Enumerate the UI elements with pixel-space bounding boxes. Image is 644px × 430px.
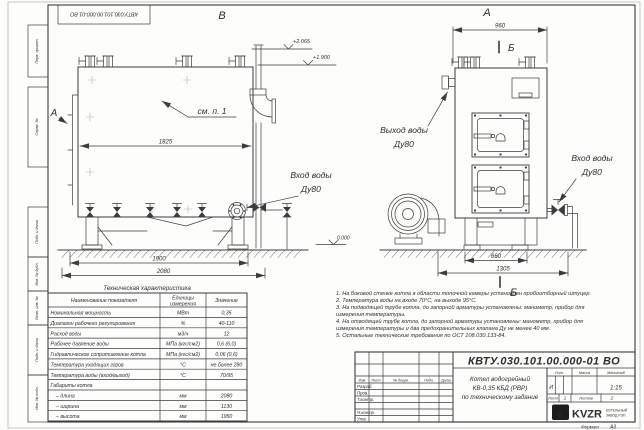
spec-cell: – высота	[55, 414, 80, 420]
top-valve-icon	[229, 56, 246, 67]
top-valve-icon	[176, 56, 193, 67]
dim-2080: 2080	[156, 269, 171, 275]
margin-label: Подп. и дата	[35, 338, 39, 362]
spec-cell: Диапазон рабочего регулирования	[50, 321, 136, 327]
see-ref-leader	[162, 101, 188, 117]
door-lock-icon	[496, 134, 505, 141]
shell-bottom	[147, 217, 213, 226]
note-item: 3. На подводящей трубе котла, до запорно…	[336, 305, 600, 319]
down-pipe	[256, 123, 261, 248]
view-front	[380, 27, 586, 287]
dim-1825: 1825	[159, 140, 173, 146]
spec-cell: МПа (кгс/см2)	[166, 352, 200, 358]
inlet-label: Вход воды	[290, 170, 332, 180]
door-upper	[472, 113, 529, 157]
tb-product-title: КВ-0,35 КБД (РВР)	[473, 385, 528, 392]
dim-1900: 1900	[152, 257, 166, 263]
spec-col-header: измерения	[170, 302, 196, 308]
spec-cell: 0,35	[221, 311, 231, 317]
spec-col-header: Наименование показателя	[71, 298, 137, 304]
outlet-label: Выход воды	[380, 125, 429, 135]
dim-1305: 1305	[496, 267, 510, 273]
pedestal	[465, 218, 537, 245]
spec-cell: 1130	[221, 404, 232, 410]
spec-cell: 0,6 (6,0)	[217, 342, 237, 348]
tb-col-header: Лист	[370, 379, 380, 383]
note-item: 1. На боковой стенке котла в области топ…	[336, 291, 600, 298]
spec-cell: МВт	[177, 311, 190, 317]
drain-valve-icon	[113, 204, 122, 218]
spec-col-header: Значение	[215, 298, 238, 304]
spec-cell: °С	[180, 362, 186, 368]
tb-sheet-label: Лист	[547, 397, 558, 401]
section-b-label-top: Б	[508, 43, 515, 54]
elevation-value: 0.000	[337, 236, 350, 242]
tb-sheets-label: Листов	[578, 397, 593, 401]
tb-lit-value: И	[549, 385, 553, 391]
tb-col-header: Изм	[359, 379, 366, 383]
top-valve-icon	[464, 57, 481, 68]
spec-cell: – длина	[55, 394, 75, 400]
spec-cell: Расход воды	[51, 331, 82, 337]
inlet-size-label: Ду80	[581, 167, 602, 177]
spec-cell: не более 280	[211, 362, 243, 368]
see-ref-label: см. п. 1	[198, 106, 227, 116]
dim-960: 960	[495, 24, 506, 30]
spec-cell: %	[181, 321, 186, 327]
tb-mass-header: Масса	[579, 371, 590, 375]
title-block-doc-number: КВТУ.030.101.00.000-01 ВО	[468, 356, 620, 368]
tb-staff-role: Пров.	[357, 391, 368, 396]
spec-cell: Температура воды (вход/выход)	[51, 373, 130, 379]
spec-cell: Температура уходящих газов	[51, 362, 124, 368]
company-name-line: ЗАВОД РЭП	[606, 414, 626, 418]
tb-product-title: по техническому задание	[462, 393, 539, 401]
technical-notes: 1. На боковой стенке котла в области топ…	[336, 291, 600, 340]
margin-label: Перв. примен.	[35, 38, 39, 63]
company-name-line: КОТЕЛЬНЫЙ	[606, 409, 628, 413]
pipe-valve-icon	[247, 203, 266, 212]
tb-scale-value: 1:15	[610, 386, 622, 392]
blower-fan-icon	[388, 194, 445, 244]
centerline-crosses	[86, 76, 192, 213]
inlet-leader	[559, 179, 576, 202]
view-front-label: А	[482, 7, 490, 19]
outlet-leader	[428, 92, 448, 126]
view-side-label: В	[218, 10, 225, 22]
spec-cell: °С	[180, 373, 186, 379]
spec-cell: МПа (кгс/см2)	[166, 342, 200, 348]
note-item: 2. Температура воды на входе 70°С, на вы…	[336, 298, 600, 305]
spec-cell: мм	[179, 404, 187, 410]
margin-label: Взам. инв. №	[35, 296, 39, 319]
kvzr-logo-text: KVZR	[572, 409, 602, 421]
format-value: А3	[609, 425, 616, 430]
spec-cell: 12	[224, 331, 230, 337]
aux-valve-icon	[283, 204, 292, 218]
spec-cell: 70/95	[220, 373, 233, 379]
spec-table-title: Техническая характеристика	[103, 285, 191, 292]
tb-col-header: Подп.	[424, 379, 434, 383]
door-lock-icon	[496, 187, 505, 194]
ground-hatch	[384, 251, 583, 258]
tb-scale-header: Масштаб	[607, 371, 626, 375]
drawing-canvas: Перв. примен. Справ. № Подп. и дата Инв.…	[0, 0, 644, 430]
side-conduit	[68, 95, 78, 205]
format-label: Формат	[581, 425, 599, 430]
note-item: 4. На отводящей трубе котла, до запорной…	[336, 319, 600, 333]
tb-staff-role: Разраб.	[357, 384, 373, 389]
outlet-flange-icon	[442, 76, 449, 89]
spec-cell: 40-110	[219, 321, 235, 327]
ground-hatch	[62, 251, 301, 258]
spec-cell: м3/ч	[178, 331, 189, 337]
stack-flange	[250, 89, 266, 95]
support-leg	[86, 217, 98, 245]
door-lower	[472, 165, 529, 213]
drain-valve-icon	[146, 204, 155, 218]
inlet-size-label: Ду80	[300, 184, 321, 194]
spec-cell: Габариты котла	[51, 383, 93, 389]
inlet-valve-icon	[547, 200, 578, 249]
tb-col-header: № докум.	[393, 379, 409, 383]
tb-staff-role: Утв.	[357, 417, 367, 422]
door-latch	[474, 187, 491, 191]
spec-cell: 0,06 (0,6)	[215, 352, 237, 358]
stack-pipe	[254, 45, 263, 89]
boiler-body-front	[455, 68, 547, 218]
margin-label: Подп. и дата	[35, 220, 39, 244]
margin-label: Справ. №	[35, 118, 39, 135]
section-a-arrow	[59, 118, 67, 124]
door-latch	[474, 134, 491, 138]
top-valve-icon	[452, 57, 469, 68]
tb-lit-header: Лит.	[554, 371, 564, 375]
elevation-value: +2.065	[293, 39, 311, 45]
drain-valve-icon	[198, 204, 207, 218]
tb-sheets-value: 2	[610, 396, 614, 402]
drain-valve-icon	[173, 204, 182, 218]
spec-cell: мм	[179, 414, 187, 420]
tb-sheet-value: 1	[564, 396, 567, 402]
top-valve-icon	[519, 57, 536, 68]
top-valve-icon	[97, 56, 114, 67]
inlet-label: Вход воды	[571, 153, 613, 163]
drain-valve-icon	[86, 204, 95, 218]
margin-label: Инв. № дубл.	[35, 262, 39, 285]
dim-660: 660	[491, 254, 502, 260]
spec-cell: Рабочее давление воды	[51, 342, 109, 348]
spec-cell: – ширина	[55, 404, 79, 410]
section-a-label: А	[50, 108, 58, 119]
support-leg	[232, 217, 244, 245]
spec-cell: Номинальная мощность	[51, 311, 112, 317]
tb-product-title: Котел водогрейный	[470, 375, 530, 383]
drawing-sheet: Перв. примен. Справ. № Подп. и дата Инв.…	[0, 0, 644, 430]
elevation-mark	[258, 61, 336, 66]
top-valve-icon	[79, 56, 96, 67]
tb-staff-role: Н.контр.	[357, 410, 375, 415]
note-item: 5. Остальные технические требования по О…	[336, 333, 600, 340]
kvzr-logo-mark-text: КЗР	[558, 411, 562, 418]
tb-staff-role: Т.контр.	[357, 397, 374, 402]
tb-col-header: Дата	[440, 379, 450, 383]
margin-label: Инв. № подл.	[35, 386, 39, 410]
spec-cell: 2080	[220, 394, 233, 400]
spec-cell: Гидравлическое сопротивление котла	[51, 352, 146, 358]
spec-cell: мм	[179, 394, 187, 400]
spec-cell: 1950	[221, 414, 233, 420]
doc-number-stamp: КВТУ.030.101.00.000-01 ВО	[69, 11, 137, 17]
view-side	[58, 45, 346, 279]
inlet-leader	[247, 196, 298, 208]
control-panel	[512, 78, 539, 98]
elevation-value: +1.900	[313, 55, 331, 61]
outlet-size-label: Ду80	[393, 139, 414, 149]
